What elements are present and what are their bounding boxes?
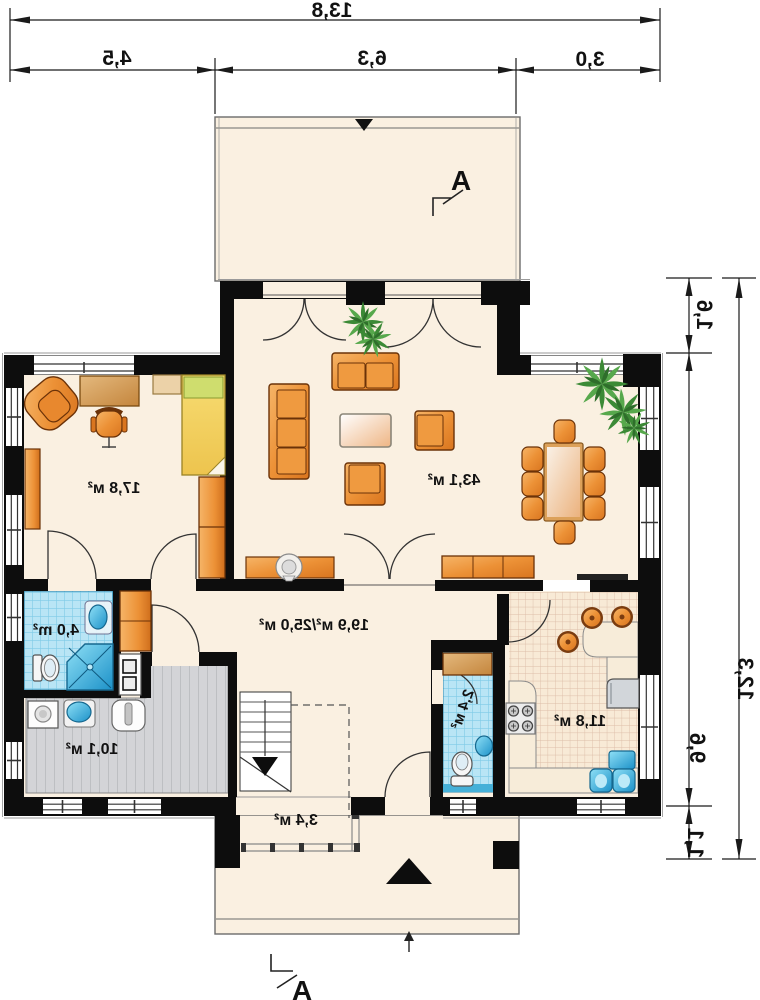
svg-text:3,0: 3,0 (575, 48, 604, 71)
svg-text:3,4 м²: 3,4 м² (274, 812, 318, 829)
svg-text:1,1: 1,1 (683, 828, 708, 859)
svg-text:4,5: 4,5 (102, 47, 132, 70)
svg-text:12,3: 12,3 (733, 658, 758, 701)
svg-text:10,1 м²: 10,1 м² (66, 741, 119, 758)
svg-text:А: А (451, 165, 471, 196)
svg-text:4,0 m²: 4,0 m² (33, 622, 79, 639)
svg-text:1,6: 1,6 (692, 300, 717, 331)
svg-text:6,3: 6,3 (357, 47, 386, 70)
svg-text:9,6: 9,6 (685, 733, 710, 764)
svg-text:А: А (292, 975, 312, 1000)
svg-text:17,8 м²: 17,8 м² (88, 480, 141, 497)
svg-text:43,1 м²: 43,1 м² (428, 472, 481, 489)
svg-text:19,9 м²/25,0 м²: 19,9 м²/25,0 м² (259, 617, 369, 634)
svg-text:11,8 м²: 11,8 м² (554, 713, 606, 730)
svg-text:13,8: 13,8 (311, 0, 352, 22)
